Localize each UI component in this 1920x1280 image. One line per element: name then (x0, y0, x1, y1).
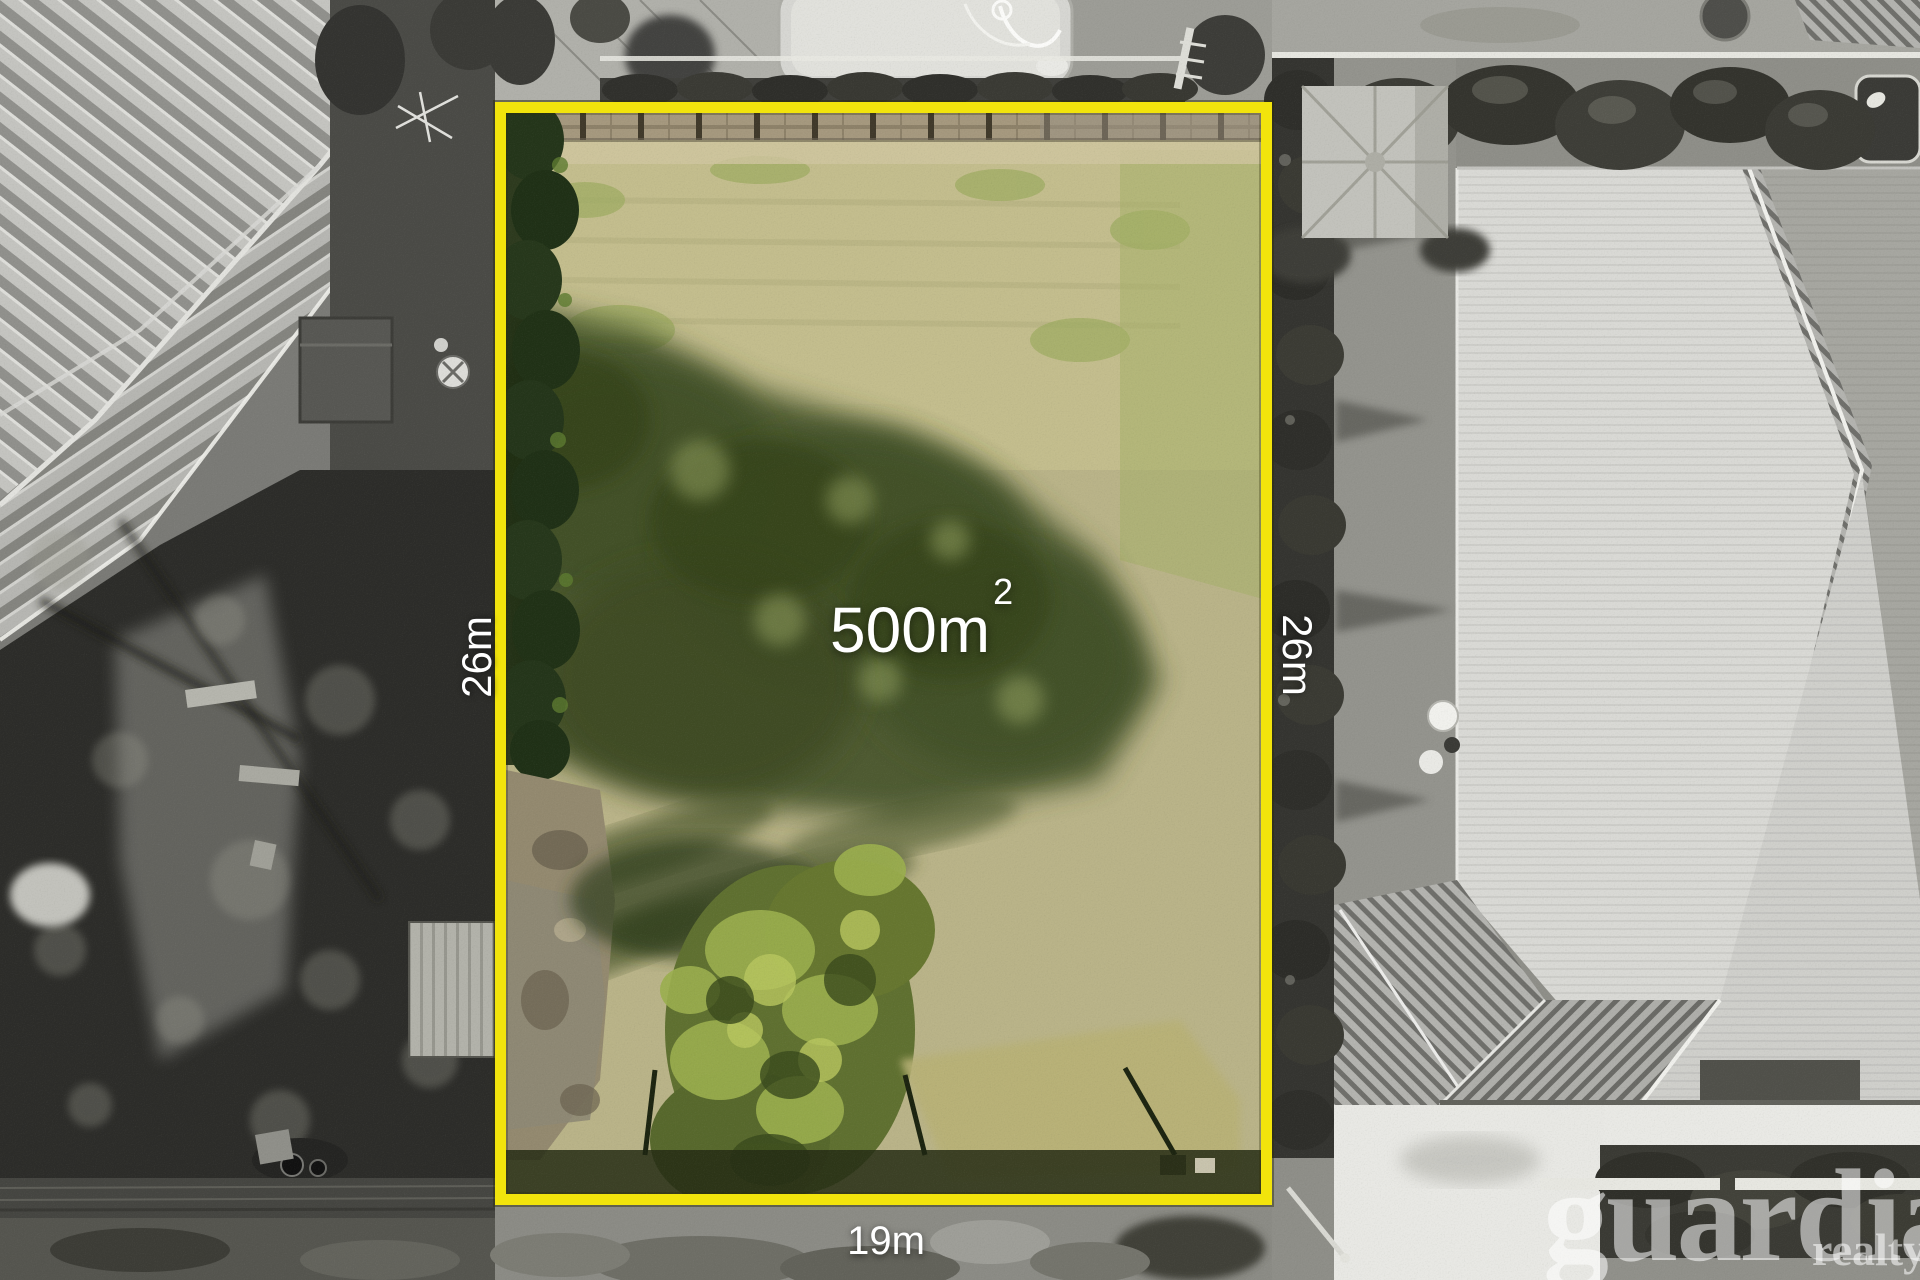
dimension-label-left: 26m (455, 597, 499, 717)
area-superscript: 2 (993, 571, 1013, 612)
area-label: 500m2 (830, 598, 1013, 662)
dimension-label-frontage: 19m (826, 1219, 946, 1263)
area-value: 500m (830, 594, 990, 666)
aerial-listing-photo: 500m2 26m 26m 19m guardian realty (0, 0, 1920, 1280)
dimension-label-right: 26m (1275, 595, 1319, 715)
